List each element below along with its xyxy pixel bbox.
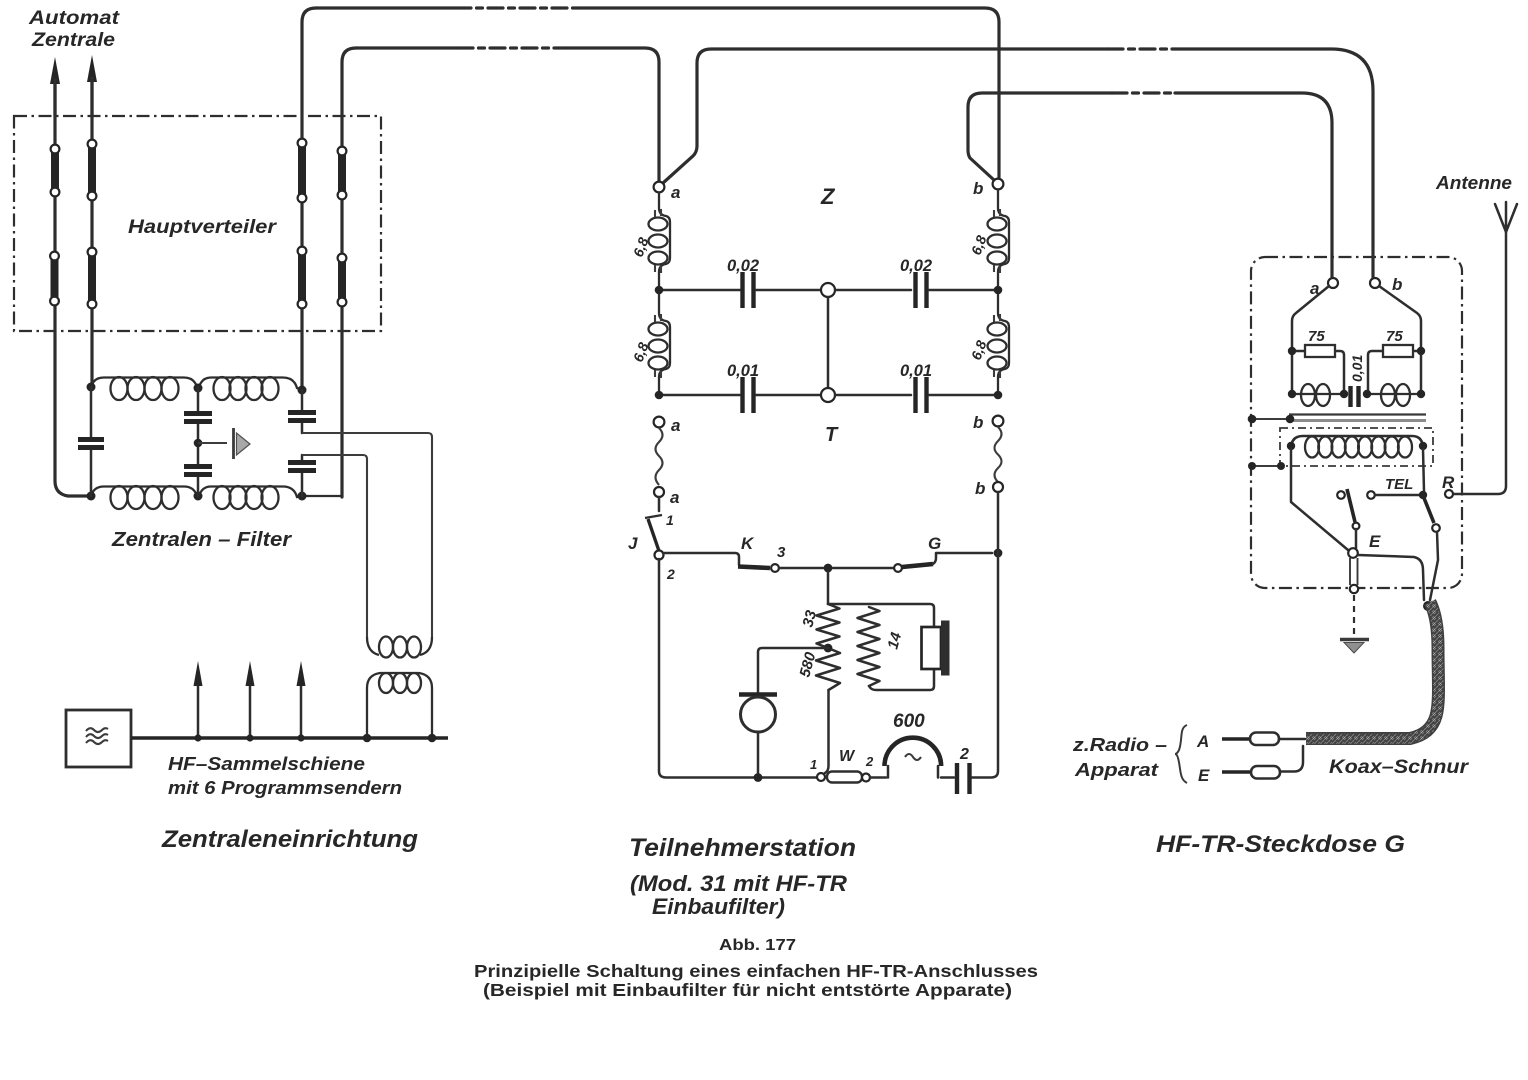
svg-text:75: 75 [1308,328,1325,345]
svg-text:J: J [628,534,638,553]
svg-text:(Beispiel mit Einbaufilter für: (Beispiel mit Einbaufilter für nicht ent… [483,980,1012,1000]
svg-text:G: G [928,534,941,553]
svg-text:2: 2 [666,566,675,582]
svg-text:600: 600 [893,711,925,732]
svg-text:Prinzipielle Schaltung eines e: Prinzipielle Schaltung eines einfachen H… [474,961,1038,981]
svg-text:0,02: 0,02 [727,257,759,275]
svg-text:a: a [671,416,680,435]
svg-text:Automat: Automat [28,8,120,29]
svg-text:b: b [975,479,985,498]
svg-text:75: 75 [1386,328,1403,345]
svg-text:0,02: 0,02 [900,257,932,275]
svg-text:a: a [671,183,680,202]
svg-text:E: E [1369,532,1381,551]
svg-text:Apparat: Apparat [1074,760,1159,780]
svg-text:2: 2 [959,746,969,763]
svg-text:T: T [825,424,839,446]
svg-text:E: E [1198,766,1210,785]
svg-text:R: R [1442,473,1455,492]
svg-text:Teilnehmerstation: Teilnehmerstation [629,834,856,862]
svg-text:Koax–Schnur: Koax–Schnur [1329,757,1470,778]
svg-text:Zentraleneinrichtung: Zentraleneinrichtung [161,826,418,853]
svg-text:0,01: 0,01 [900,362,932,380]
svg-text:b: b [973,179,983,198]
svg-text:A: A [1196,732,1209,751]
svg-text:a: a [670,488,679,507]
svg-text:(Mod. 31 mit HF-TR: (Mod. 31 mit HF-TR [630,871,847,896]
svg-text:Einbaufilter): Einbaufilter) [652,894,785,919]
svg-text:z.Radio –: z.Radio – [1072,735,1167,755]
svg-text:HF-TR-Steckdose G: HF-TR-Steckdose G [1156,831,1405,858]
svg-text:W: W [839,748,856,765]
svg-text:0,01: 0,01 [727,362,759,380]
svg-text:Zentrale: Zentrale [31,30,116,51]
svg-text:3: 3 [777,544,786,561]
svg-text:HF–Sammelschiene: HF–Sammelschiene [168,754,365,774]
svg-text:Zentralen – Filter: Zentralen – Filter [111,529,292,551]
svg-text:2: 2 [865,754,874,769]
svg-text:Hauptverteiler: Hauptverteiler [128,217,278,238]
svg-text:TEL: TEL [1385,476,1413,493]
svg-text:mit 6 Programmsendern: mit 6 Programmsendern [168,778,402,798]
svg-text:Antenne: Antenne [1435,173,1512,193]
svg-text:b: b [1392,275,1402,294]
svg-text:1: 1 [810,757,817,772]
svg-text:1: 1 [666,512,674,528]
svg-text:Abb. 177: Abb. 177 [719,937,796,954]
svg-text:b: b [973,413,983,432]
svg-text:K: K [741,534,755,553]
svg-text:Z: Z [820,184,836,209]
svg-text:0,01: 0,01 [1349,355,1365,382]
